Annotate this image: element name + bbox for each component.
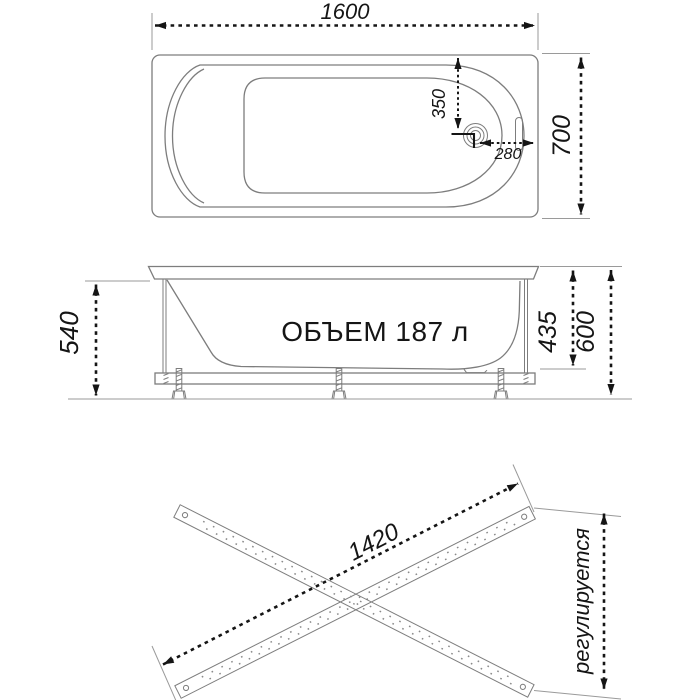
side-view: ОБЪЕМ 187 л 540 435 600 [54, 267, 632, 400]
extension-lines-1420 [152, 465, 534, 700]
dim-label-540: 540 [54, 311, 84, 355]
technical-drawing-page: 1600 700 350 280 ОБЪЕМ 187 л 540 43 [0, 0, 700, 700]
volume-label: ОБЪЕМ 187 л [281, 316, 469, 347]
support-rail-ascending [175, 506, 536, 698]
frame-anchor-hatch [164, 374, 529, 384]
dim-label-435: 435 [534, 311, 562, 353]
rim-slab [149, 267, 539, 280]
bottom-view: 1420 регулируется [152, 465, 621, 700]
dim-label-1420: 1420 [344, 518, 404, 567]
dim-label-drain-280: 280 [494, 146, 522, 163]
support-rail-descending [174, 505, 534, 697]
bathtub-technical-drawing: 1600 700 350 280 ОБЪЕМ 187 л 540 43 [0, 0, 700, 700]
dim-label-width: 700 [548, 115, 576, 157]
dim-label-drain-350: 350 [429, 89, 449, 119]
drain-icon [464, 124, 488, 148]
dim-label-length: 1600 [321, 0, 371, 24]
dim-line-1420 [163, 484, 518, 665]
apron-edge-right [525, 279, 528, 373]
top-view: 1600 700 350 280 [152, 0, 590, 219]
dim-label-600: 600 [572, 311, 600, 353]
adjustable-label: регулируется [569, 528, 594, 675]
headrest-contour [173, 69, 205, 203]
drain-outlet [464, 369, 487, 372]
apron-edge-left [163, 279, 166, 373]
support-frame [155, 373, 535, 384]
